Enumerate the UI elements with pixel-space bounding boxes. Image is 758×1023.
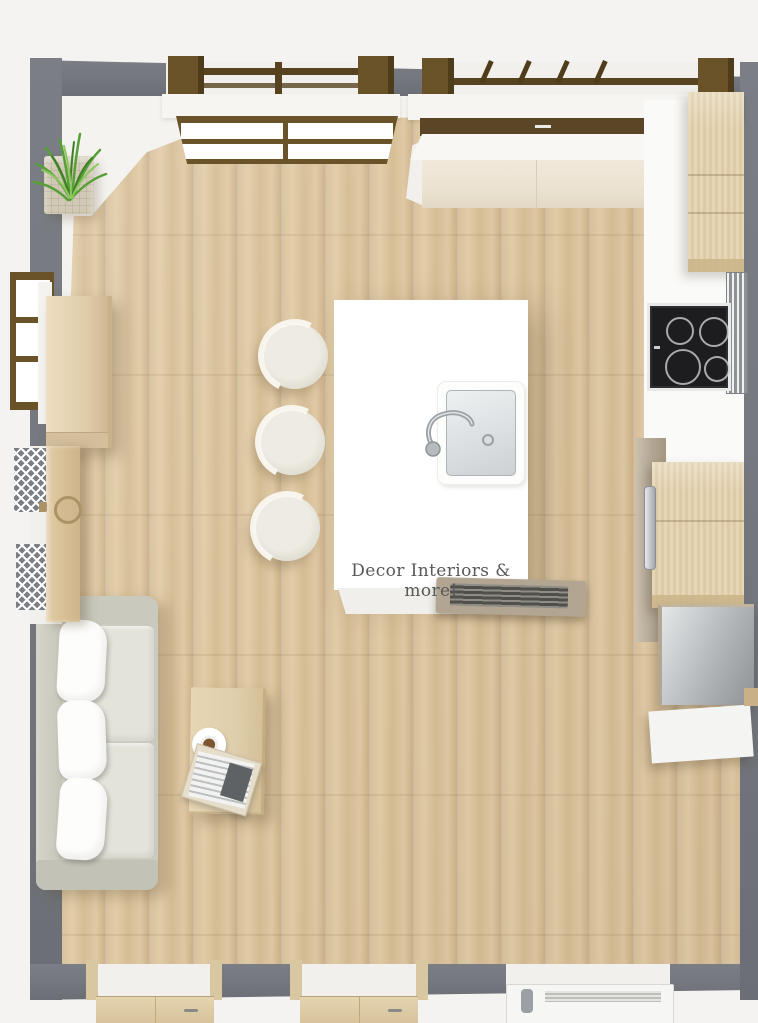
pillow	[57, 699, 108, 781]
door-bottom-opening	[296, 964, 422, 1000]
railing-bar	[176, 83, 388, 88]
railing-post-mid	[275, 62, 282, 96]
cooktop[interactable]	[650, 306, 728, 388]
bar-stool[interactable]	[259, 409, 325, 475]
door-left-open[interactable]	[46, 446, 80, 622]
cabinet-divider	[688, 212, 744, 214]
watermark-label: Decor Interiors & more!	[334, 561, 528, 601]
side-window-right-blinds[interactable]	[726, 272, 748, 394]
window-mullion	[283, 123, 288, 159]
lower-wood-cabinet[interactable]	[652, 462, 744, 608]
cabinet-divider	[688, 174, 744, 176]
window-sill	[162, 94, 400, 118]
door-jamb	[290, 960, 302, 1000]
grass-plant-icon	[30, 120, 110, 206]
door-jamb	[210, 960, 222, 1000]
bottom-window-unit[interactable]	[506, 984, 674, 1023]
cabinet-divider	[652, 520, 744, 522]
bottom-door[interactable]	[300, 996, 418, 1023]
window-latch	[535, 125, 551, 128]
magazine-stack	[181, 743, 262, 816]
door-latch	[39, 502, 47, 512]
white-base-cabinet[interactable]	[648, 705, 753, 764]
cabinet-handle	[644, 486, 656, 570]
sofa-armrest	[36, 860, 158, 890]
door-jamb	[86, 960, 98, 1000]
railing-bar	[428, 78, 724, 85]
bar-stool[interactable]	[262, 323, 328, 389]
exterior-blinds	[16, 544, 48, 610]
sink-drain	[482, 434, 494, 446]
burner	[666, 317, 694, 345]
kitchen-counter-front[interactable]	[422, 160, 650, 208]
steel-oven[interactable]	[658, 604, 754, 705]
door-handle	[388, 1009, 402, 1012]
door-knob	[54, 496, 82, 524]
tall-cabinet[interactable]	[688, 92, 744, 272]
door-bottom-opening	[92, 964, 218, 1000]
burner	[665, 349, 701, 385]
pillow	[55, 776, 109, 861]
bottom-door[interactable]	[96, 996, 214, 1023]
burner	[699, 317, 729, 347]
window-unit-vents	[545, 991, 661, 1002]
floorplan-canvas: Decor Interiors & more!	[0, 0, 758, 1023]
cabinet-side-sliver	[744, 688, 758, 706]
burner	[704, 356, 730, 382]
sofa[interactable]	[36, 596, 158, 890]
faucet-icon	[416, 396, 480, 464]
door-handle	[184, 1009, 198, 1012]
window-frame[interactable]	[176, 116, 398, 164]
sideboard[interactable]	[46, 296, 112, 448]
window-unit-handle	[521, 989, 533, 1013]
cooktop-control	[654, 346, 660, 349]
door-jamb	[416, 960, 428, 1000]
coffee-table[interactable]	[189, 687, 266, 814]
pillow	[56, 619, 108, 703]
bar-stool[interactable]	[254, 495, 320, 561]
kitchen-counter-top[interactable]	[410, 134, 652, 160]
